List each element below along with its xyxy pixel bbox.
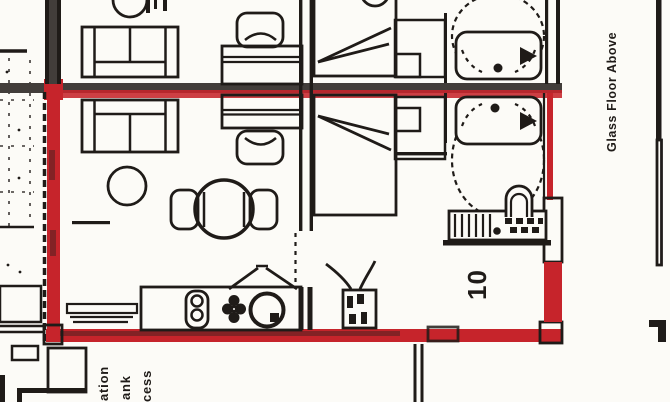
sofa-lower: [82, 100, 178, 152]
wall-smudge: [60, 331, 400, 336]
boundary-line: [656, 0, 662, 140]
checker-block: [516, 218, 523, 224]
right-wall-red-thin: [547, 93, 553, 200]
lower-wall-line: [414, 344, 417, 402]
lower-wall-bar: [17, 388, 22, 402]
bed-outline: [314, 95, 396, 215]
lower-wall-bar: [0, 375, 5, 402]
desk-outline: [222, 95, 302, 128]
scan-artifact-mark: [154, 0, 157, 9]
desk-upper: [222, 13, 302, 84]
potted-plant: [326, 261, 376, 328]
sofa-upper: [82, 27, 178, 77]
burner-center: [232, 307, 237, 312]
nightstand: [396, 108, 420, 131]
boundary-line: [657, 140, 662, 265]
floor-plan-page: Glass Floor Above 10 ation ank cess: [0, 0, 670, 402]
site-boundary: [649, 0, 666, 342]
left-wall-red: [47, 90, 60, 342]
shower-tray-upper: [456, 32, 541, 79]
toilet: [506, 186, 532, 217]
kitchen-sink-unit: [186, 291, 208, 328]
right-wall-line: [556, 0, 560, 84]
unit-number-label: 10: [462, 269, 492, 300]
chair-seat-curve: [245, 34, 276, 41]
right-wall-line: [545, 0, 548, 84]
left-wall-upper-edge: [57, 0, 61, 84]
burner-symbol: [222, 295, 246, 323]
center-wall-line: [310, 0, 313, 231]
left-wall-upper-edge: [45, 0, 49, 84]
checker-block: [538, 218, 543, 224]
clipped-label-1: ation: [96, 366, 111, 401]
checker-block: [521, 227, 528, 233]
checker-block: [505, 218, 512, 224]
kitchen-area: [67, 261, 376, 330]
plant-stem: [360, 261, 375, 289]
lower-wall-line: [421, 344, 424, 402]
bathroom-area: [443, 0, 551, 246]
vanity-dot: [493, 227, 501, 235]
lower-wall-bar: [17, 388, 85, 393]
dining-set: [171, 180, 277, 238]
chair: [237, 131, 283, 164]
drain-dot: [494, 64, 503, 73]
pot-hatch: [347, 296, 353, 308]
small-step-outline: [12, 346, 38, 360]
deck-dot: [7, 264, 10, 267]
shelf-slat: [67, 304, 137, 313]
bed-lower: [314, 95, 396, 215]
deck-dot: [19, 271, 22, 274]
wall-stub: [72, 221, 110, 224]
sink-bowl: [192, 296, 203, 307]
pot-hatch: [349, 314, 356, 324]
chair: [237, 13, 283, 47]
bedroom-area: [314, 0, 445, 215]
center-wall-line: [308, 287, 313, 330]
stool-clipped-top: [361, 0, 389, 6]
lower-strip: [0, 344, 424, 402]
clipped-label-2: ank: [118, 375, 133, 400]
cooktop-symbol: [251, 294, 284, 327]
shower-tray-lower: [456, 97, 541, 144]
vanity-base-bar: [443, 240, 551, 246]
glass-floor-above-label: Glass Floor Above: [605, 32, 619, 152]
wardrobe-nightstand-upper: [395, 20, 445, 77]
bed-outline: [314, 0, 396, 76]
bathroom-wall: [395, 152, 447, 155]
desk-lower: [222, 95, 302, 164]
stool-clipped-top: [113, 0, 147, 17]
pot-hatch: [357, 294, 364, 304]
scan-artifact-mark: [163, 0, 167, 11]
neighbor-area-left: [0, 0, 167, 332]
deck-dot: [18, 177, 21, 180]
wardrobe-nightstand-lower: [395, 97, 445, 159]
checker-block: [510, 227, 517, 233]
burner-petal: [229, 312, 240, 323]
pot-hatch: [361, 312, 367, 324]
boundary-corner: [658, 320, 666, 342]
cabinet-door-swing: [229, 266, 297, 289]
floor-plan-drawing: Glass Floor Above 10 ation ank cess: [0, 0, 670, 402]
wall-smudge: [50, 230, 56, 256]
checker-block: [532, 227, 539, 233]
wall-smudge: [49, 150, 55, 180]
bed-upper: [314, 0, 396, 76]
checker-block: [527, 218, 534, 224]
deck-dot: [18, 129, 21, 132]
sink-bowl: [192, 310, 203, 321]
cooktop-tab: [270, 313, 279, 322]
stool: [108, 167, 146, 205]
access-hatch-square: [48, 348, 86, 392]
drain-dot: [491, 104, 500, 113]
right-wall-red-thick: [544, 262, 562, 322]
nightstand: [396, 54, 420, 77]
living-area: [82, 0, 389, 238]
chair-seat-curve: [245, 138, 276, 145]
clipped-label-3: cess: [139, 370, 154, 402]
desk-outline: [222, 46, 302, 84]
neighbor-structure: [0, 286, 41, 322]
deck-dot: [6, 71, 9, 74]
low-shelf: [67, 304, 137, 322]
plant-stem: [326, 264, 351, 289]
